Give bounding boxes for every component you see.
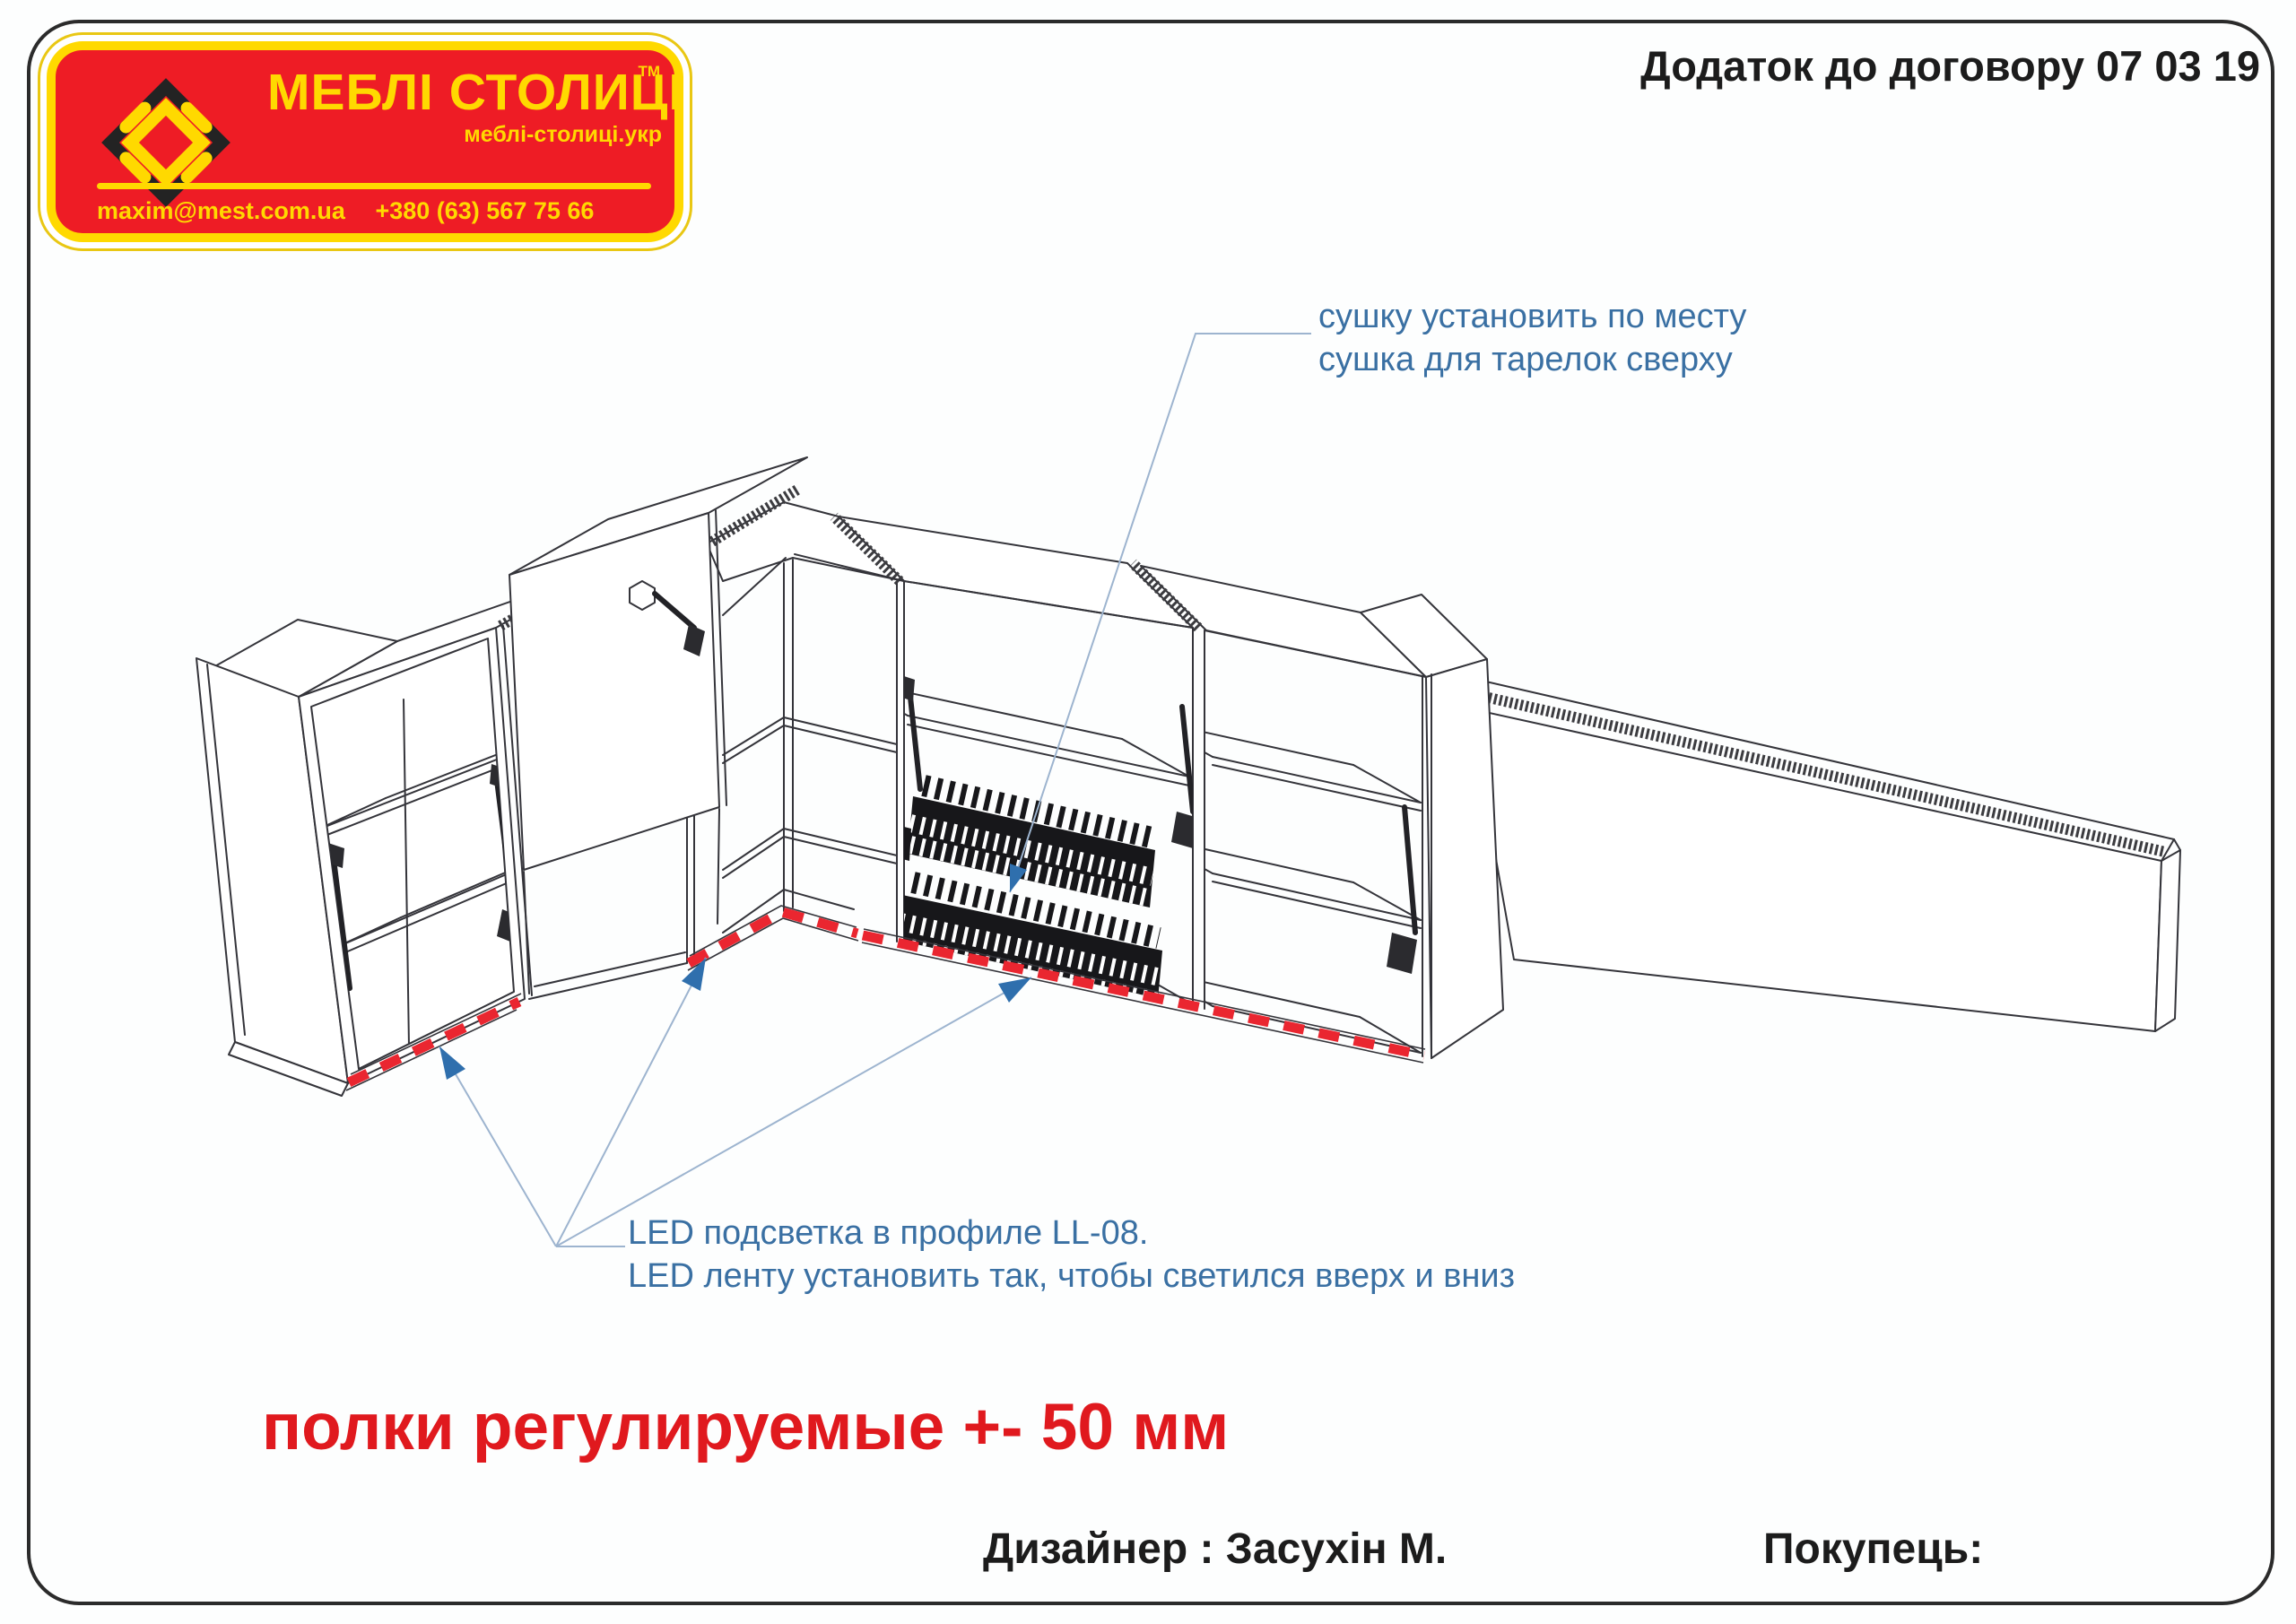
dryer-annotation-line1: сушку установить по месту (1318, 296, 1746, 339)
kitchen-cabinet-drawing (0, 0, 2296, 1624)
contract-appendix-page: TM МЕБЛІ СТОЛИЦІ меблі-столиці.укр maxim… (0, 0, 2296, 1624)
led-annotation-line2: LED ленту установить так, чтобы светился… (628, 1255, 1515, 1298)
designer-label: Дизайнер : Засухін М. (983, 1524, 1447, 1574)
buyer-label: Покупець: (1763, 1524, 1983, 1574)
dryer-annotation-line2: сушка для тарелок сверху (1318, 339, 1746, 382)
led-annotation-line1: LED подсветка в профиле LL-08. (628, 1212, 1515, 1255)
led-arrowhead-left (439, 1046, 465, 1080)
led-arrowhead-right (998, 977, 1031, 1003)
led-annotation: LED подсветка в профиле LL-08. LED ленту… (628, 1212, 1515, 1298)
cabinet-top-faces (199, 457, 1487, 697)
right-open-cabinet (1145, 630, 1503, 1058)
adjustable-shelves-note: полки регулируемые +- 50 мм (262, 1390, 1229, 1464)
led-leader-right (556, 977, 1031, 1246)
dish-dryer-cabinet (840, 581, 1205, 1010)
dryer-annotation: сушку установить по месту сушка для таре… (1318, 296, 1746, 382)
led-leader-left (439, 1046, 556, 1246)
long-side-panel (1469, 680, 2180, 1031)
